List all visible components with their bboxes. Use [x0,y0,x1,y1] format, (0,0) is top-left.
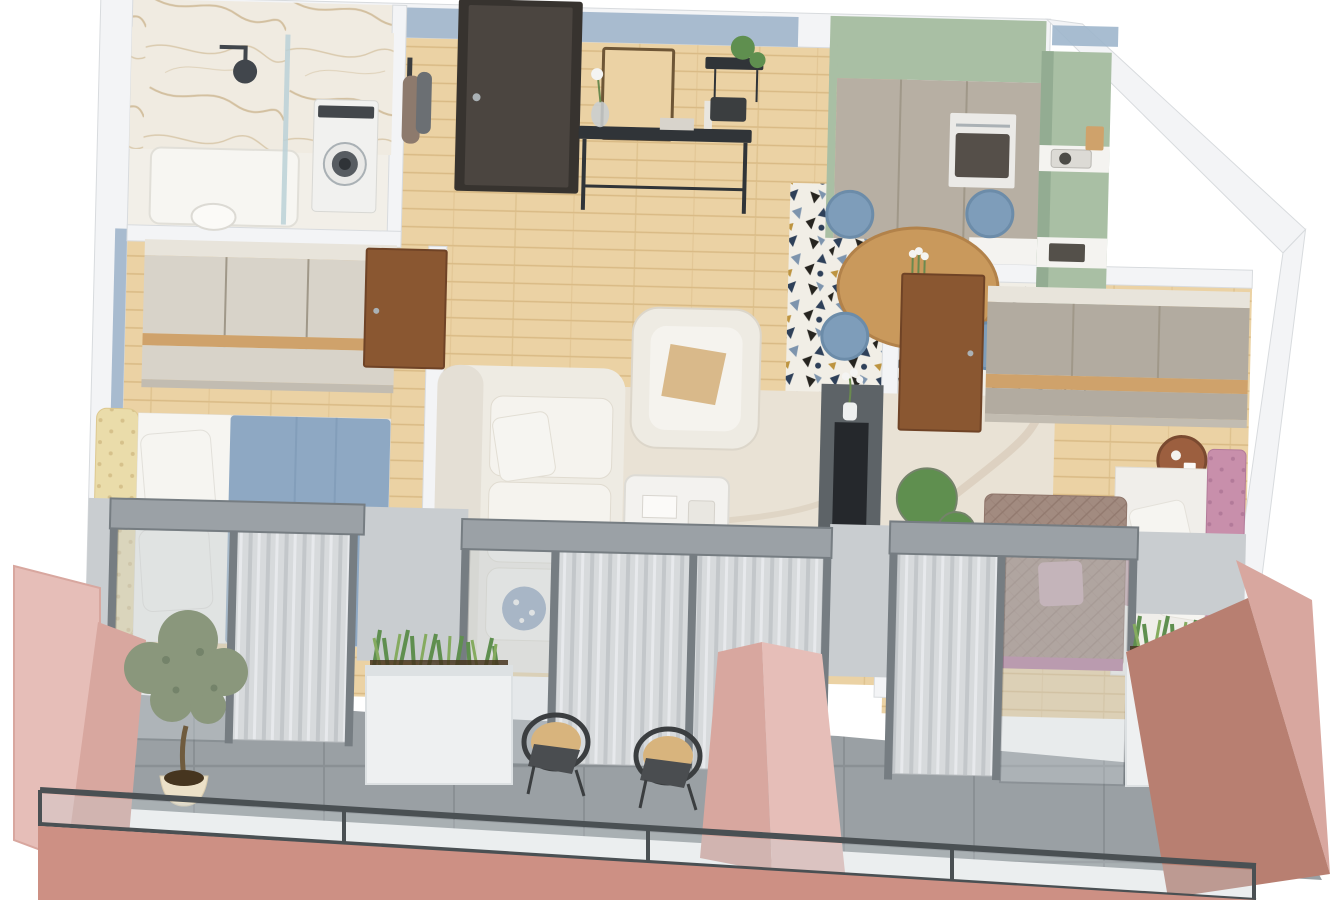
sofa-pillow-white [492,411,557,483]
toilet [191,203,236,230]
bedroom2-wardrobe [985,286,1250,428]
planter1-box [366,666,512,784]
cutting-board [1085,126,1104,150]
planter-box-left [366,630,512,784]
coffee-table-book [642,495,677,518]
bedroom1-wardrobe [141,239,397,393]
kitchen-sink-lower [1049,243,1085,262]
bedroom2-balcony-door [884,521,1138,785]
pier-living-bed2 [826,524,892,677]
door3-curtain [892,554,1001,776]
door1-beam [110,498,365,534]
bedroom1-balcony-door [105,498,365,748]
console-vase [843,402,857,420]
dining-chair-top-left [826,191,873,238]
kitchen-sage-top-band [829,16,1046,83]
front-door [464,5,572,187]
floorplan-stage [0,0,1342,900]
olive-pot-soil [164,770,204,786]
sky-window-slit [1052,25,1118,47]
door1-curtain [229,531,356,742]
door3-glass [1000,556,1129,785]
planter1-box-lip [366,666,512,676]
armchair-gold-pillow [661,344,726,406]
pier-right [1134,531,1246,616]
dining-chair-top-right [966,190,1013,237]
oven-handle [956,125,1010,126]
washing-machine [312,99,379,213]
oven-glass [955,133,1010,178]
dining-chair-bottom-left [821,313,868,360]
hanging-coat-grey [416,72,433,134]
floorplan-canvas [0,0,1342,900]
door3-beam [890,521,1139,559]
hanging-basket [710,97,747,122]
olive-canopy [160,644,216,700]
bathroom [127,27,394,234]
console-books [660,118,694,131]
armchair [630,307,761,450]
washer-control-panel [318,105,374,118]
